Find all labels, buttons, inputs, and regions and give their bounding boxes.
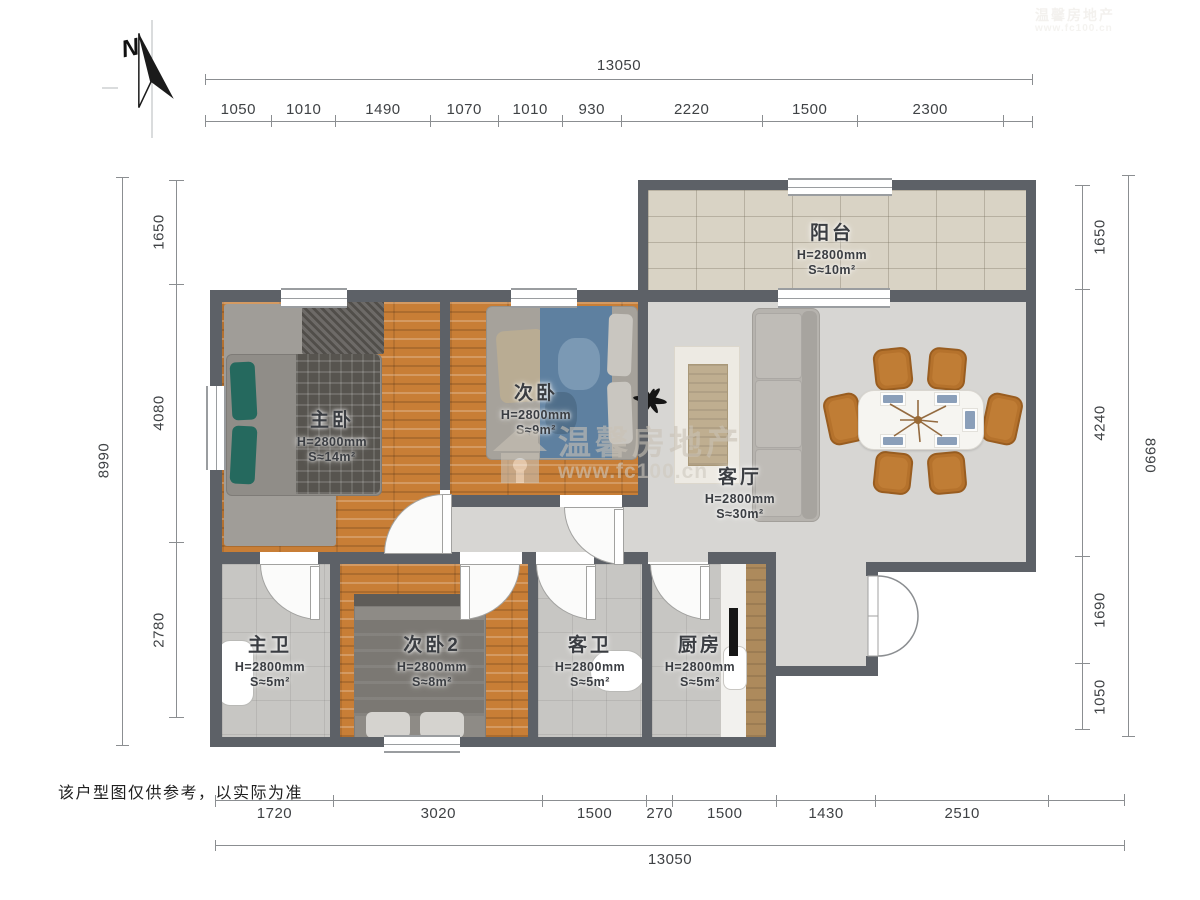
wall-segment xyxy=(766,562,776,747)
watermark-url: www.fc100.cn xyxy=(1035,23,1115,34)
dim-segment: 4080 xyxy=(142,284,176,542)
window xyxy=(511,288,577,308)
watermark-brand: 温馨房地产 xyxy=(1035,8,1115,23)
left-total-dimension: 8990 xyxy=(96,437,113,485)
dim-segment: 1010 xyxy=(272,96,336,122)
sofa-cushion xyxy=(755,313,802,379)
dim-segment: 1690 xyxy=(1083,557,1117,664)
dim-segment: 1490 xyxy=(336,96,431,122)
wall-segment xyxy=(528,564,538,747)
watermark-center: 温馨房地产 www.fc100.cn xyxy=(492,425,743,485)
watermark-brand: 温馨房地产 xyxy=(558,426,743,461)
top-total-dimension: 13050 xyxy=(205,57,1033,74)
left-dimension-segments: 1650 4080 2780 xyxy=(142,180,177,718)
wall-segment xyxy=(210,290,222,747)
dining-chair xyxy=(872,346,914,392)
balcony-sliding-door xyxy=(778,288,890,308)
window xyxy=(384,735,460,753)
dim-segment: 1500 xyxy=(762,96,857,122)
wall-segment xyxy=(210,737,776,747)
room-label-master-bath: 主卫 H=2800mm S≈5m² xyxy=(235,630,305,689)
dim-segment: 270 xyxy=(646,800,673,828)
north-arrow: N xyxy=(100,16,200,142)
pillow xyxy=(229,425,257,484)
wall-segment xyxy=(770,666,878,676)
pillow xyxy=(607,314,633,377)
dim-segment: 2300 xyxy=(857,96,1003,122)
door-leaf xyxy=(460,566,470,620)
door-leaf xyxy=(700,566,710,620)
window xyxy=(206,386,226,470)
wall-segment xyxy=(522,552,536,564)
dim-segment: 1050 xyxy=(205,96,272,122)
left-total-line xyxy=(122,177,123,746)
right-total-line xyxy=(1128,175,1129,737)
floorplan-canvas: N 13050 1050 1010 1490 1070 1010 930 222… xyxy=(0,0,1200,900)
dim-segment: 2510 xyxy=(875,800,1049,828)
dim-segment-filler xyxy=(1003,96,1033,122)
wall-segment xyxy=(210,290,646,302)
wall-segment xyxy=(1026,180,1036,572)
wall-segment xyxy=(440,302,450,490)
entry-hall-floor xyxy=(776,562,868,666)
wall-segment xyxy=(330,564,340,747)
dim-segment: 1050 xyxy=(1083,664,1117,730)
entry-double-door xyxy=(864,558,928,680)
sofa-cushion xyxy=(755,380,802,448)
dim-segment: 4240 xyxy=(1083,289,1117,557)
window xyxy=(788,178,892,196)
dining-chair xyxy=(926,346,968,391)
door-leaf xyxy=(442,494,452,554)
dim-segment: 1010 xyxy=(498,96,562,122)
door-leaf xyxy=(614,509,624,565)
dim-segment: 3020 xyxy=(334,800,543,828)
dim-segment: 1650 xyxy=(1083,185,1117,289)
right-dimension-segments: 1650 4240 1690 1050 xyxy=(1082,185,1117,730)
room-label-guest-bath: 客卫 H=2800mm S≈5m² xyxy=(555,630,625,689)
wall-segment xyxy=(622,495,648,507)
dim-segment: 2780 xyxy=(142,542,176,718)
watermark-corner: 温馨房地产 www.fc100.cn xyxy=(1035,8,1115,34)
dim-segment: 1070 xyxy=(430,96,498,122)
table-centerpiece xyxy=(880,396,956,444)
wall-segment xyxy=(448,495,560,507)
dim-segment-filler xyxy=(1049,800,1125,828)
dim-segment: 1430 xyxy=(777,800,876,828)
bottom-total-line xyxy=(215,845,1125,846)
wall-segment xyxy=(708,552,776,564)
placemat xyxy=(962,408,978,432)
house-logo-icon xyxy=(492,425,548,485)
right-total-dimension: 8990 xyxy=(1142,432,1159,480)
dim-segment: 930 xyxy=(562,96,621,122)
watermark-url: www.fc100.cn xyxy=(558,460,743,484)
kitchen-cabinet xyxy=(746,564,766,737)
door-leaf xyxy=(310,566,320,620)
room-label-master-bedroom: 主卧 H=2800mm S≈14m² xyxy=(297,405,367,464)
pillow xyxy=(229,361,257,420)
wall-segment xyxy=(638,190,648,300)
dim-segment: 1500 xyxy=(543,800,647,828)
room-label-kitchen: 厨房 H=2800mm S≈5m² xyxy=(665,630,735,689)
dining-chair xyxy=(926,450,968,495)
disclaimer-text: 该户型图仅供参考，以实际为准 xyxy=(58,779,303,803)
wall-segment xyxy=(642,564,652,747)
window xyxy=(281,288,347,308)
room-label-balcony: 阳台 H=2800mm S≈10m² xyxy=(797,218,867,277)
wall-segment xyxy=(210,552,260,564)
bottom-total-dimension: 13050 xyxy=(215,851,1125,868)
dim-segment: 1720 xyxy=(215,800,334,828)
dim-segment: 1650 xyxy=(142,180,176,284)
top-dimension-segments: 1050 1010 1490 1070 1010 930 2220 1500 2… xyxy=(205,96,1033,122)
bottom-dimension-segments: 1720 3020 1500 270 1500 1430 2510 xyxy=(215,800,1125,828)
top-total-line xyxy=(205,79,1033,80)
door-leaf xyxy=(586,566,596,620)
dim-segment: 2220 xyxy=(621,96,762,122)
plant-icon xyxy=(630,378,670,422)
sofa-backrest xyxy=(802,311,817,519)
room-label-bedroom3: 次卧2 H=2800mm S≈8m² xyxy=(397,630,467,689)
dining-chair xyxy=(872,450,914,496)
dim-segment: 1500 xyxy=(673,800,777,828)
